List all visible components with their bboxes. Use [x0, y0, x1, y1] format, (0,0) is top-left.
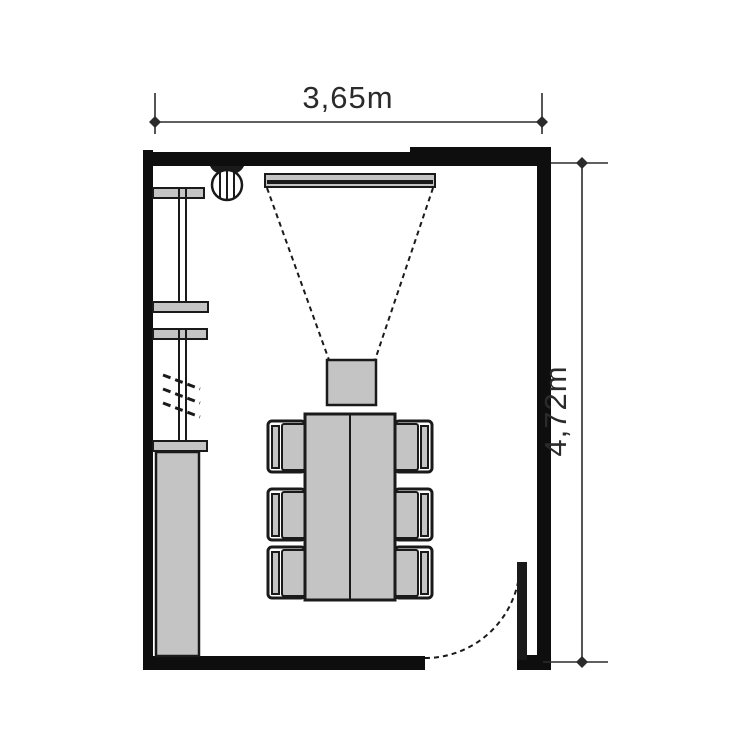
- shelf-4: [153, 441, 207, 451]
- shelf-post-upper: [179, 187, 186, 313]
- rail-mark: [163, 375, 200, 389]
- dimension-right-marker-bottom: [576, 656, 588, 668]
- wall-bottom: [143, 656, 425, 670]
- chair-backrest: [272, 552, 279, 594]
- projection-set: [265, 174, 435, 405]
- dimension-top-marker-left: [149, 116, 161, 128]
- chair-backrest: [421, 426, 428, 468]
- dimension-top: 3,65m: [149, 80, 548, 134]
- cabinet: [156, 452, 199, 656]
- ceiling-lamp-icon: [210, 166, 244, 200]
- wall-top: [143, 152, 549, 166]
- dimension-top-marker-right: [536, 116, 548, 128]
- chair-seat: [282, 492, 305, 538]
- dimension-width-label: 3,65m: [302, 80, 393, 115]
- floor-plan-canvas: 3,65m 4,72m: [0, 0, 750, 750]
- chair-seat: [395, 550, 418, 596]
- dimension-right-marker-top: [576, 157, 588, 169]
- chair-right-2: [395, 489, 432, 540]
- door-swing-arc: [425, 563, 520, 658]
- chair-left-1: [268, 421, 305, 472]
- chair-left-2: [268, 489, 305, 540]
- shelf-post-lower: [179, 328, 186, 452]
- rail-mark: [163, 389, 200, 403]
- hanging-rail-marks: [163, 375, 200, 417]
- projection-cone-right: [375, 188, 433, 360]
- chair-backrest: [272, 494, 279, 536]
- door-leaf: [517, 562, 527, 660]
- projector: [327, 360, 376, 405]
- door: [425, 562, 527, 660]
- chair-left-3: [268, 547, 305, 598]
- projection-cone-left: [267, 188, 329, 360]
- chair-seat: [282, 550, 305, 596]
- shelf-2: [153, 302, 208, 312]
- dimension-height-label: 4,72m: [538, 365, 573, 456]
- chair-seat: [282, 424, 305, 470]
- chair-right-3: [395, 547, 432, 598]
- chair-backrest: [272, 426, 279, 468]
- rail-mark: [163, 403, 200, 417]
- conference-area: [268, 414, 432, 600]
- wall-top-ledge: [410, 147, 551, 154]
- wall-left: [143, 150, 153, 670]
- chair-right-1: [395, 421, 432, 472]
- chair-seat: [395, 424, 418, 470]
- floor-plan-drawing: 3,65m 4,72m: [0, 0, 750, 750]
- chair-backrest: [421, 552, 428, 594]
- chair-backrest: [421, 494, 428, 536]
- chair-seat: [395, 492, 418, 538]
- projection-screen-stripe: [267, 180, 433, 184]
- shelving-unit: [153, 187, 208, 656]
